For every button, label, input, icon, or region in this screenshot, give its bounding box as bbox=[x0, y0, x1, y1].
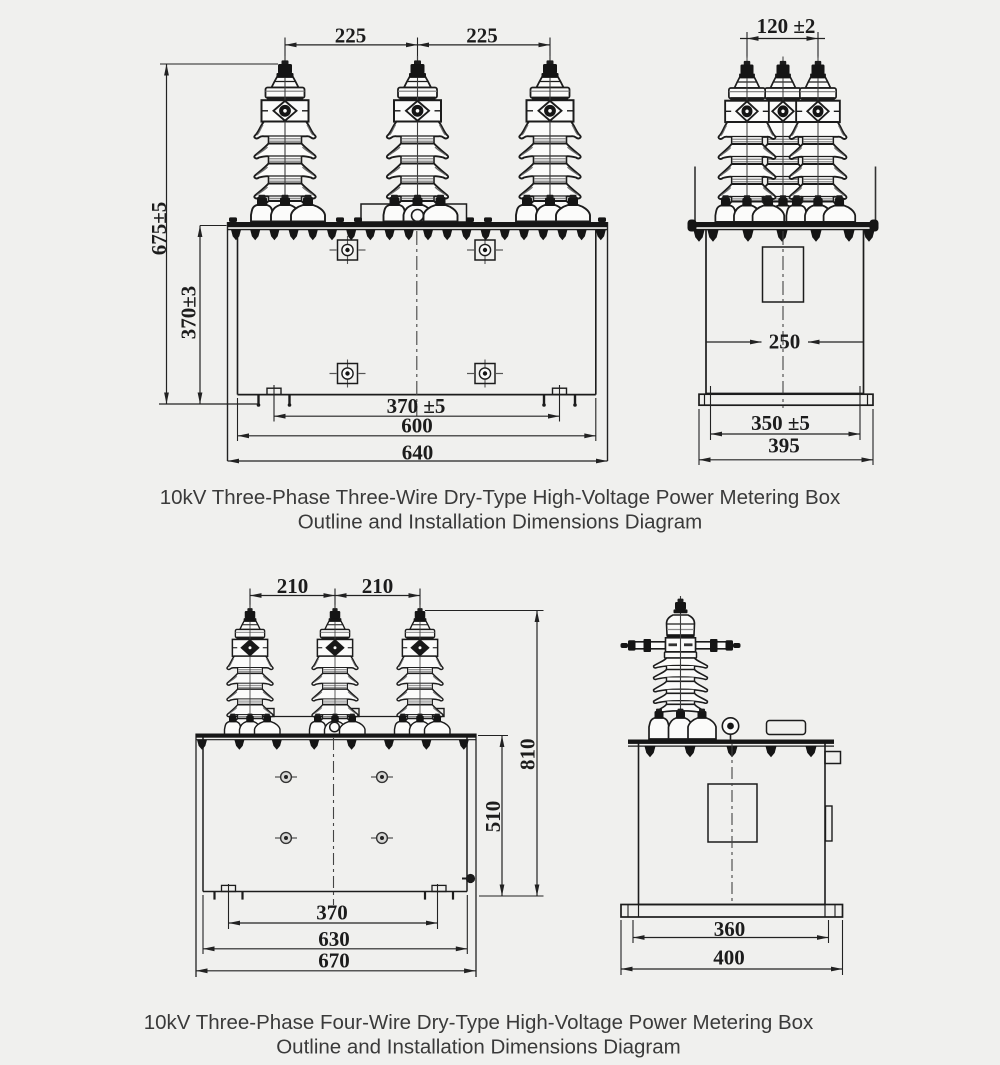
svg-text:210: 210 bbox=[277, 574, 309, 598]
svg-text:10kV Three-Phase Three-Wire Dr: 10kV Three-Phase Three-Wire Dry-Type Hig… bbox=[160, 486, 841, 509]
svg-text:225: 225 bbox=[335, 23, 367, 47]
svg-text:10kV Three-Phase Four-Wire Dry: 10kV Three-Phase Four-Wire Dry-Type High… bbox=[144, 1011, 814, 1034]
svg-text:225: 225 bbox=[466, 23, 498, 47]
svg-text:350 ±5: 350 ±5 bbox=[751, 411, 810, 435]
svg-text:400: 400 bbox=[713, 946, 745, 970]
svg-text:370: 370 bbox=[316, 901, 348, 925]
svg-text:510: 510 bbox=[481, 801, 505, 833]
svg-text:120 ±2: 120 ±2 bbox=[757, 14, 816, 38]
svg-text:640: 640 bbox=[402, 441, 434, 465]
svg-text:250: 250 bbox=[769, 330, 801, 354]
svg-text:600: 600 bbox=[401, 414, 433, 438]
svg-text:210: 210 bbox=[362, 574, 394, 598]
svg-text:675±5: 675±5 bbox=[147, 202, 171, 256]
svg-text:810: 810 bbox=[516, 738, 540, 770]
svg-text:370±3: 370±3 bbox=[177, 286, 201, 340]
svg-text:670: 670 bbox=[318, 949, 350, 973]
svg-text:395: 395 bbox=[768, 434, 800, 458]
svg-text:630: 630 bbox=[318, 927, 350, 951]
svg-text:Outline and Installation Dimen: Outline and Installation Dimensions Diag… bbox=[276, 1036, 681, 1059]
svg-text:Outline and Installation Dimen: Outline and Installation Dimensions Diag… bbox=[298, 511, 703, 534]
svg-text:360: 360 bbox=[714, 917, 746, 941]
